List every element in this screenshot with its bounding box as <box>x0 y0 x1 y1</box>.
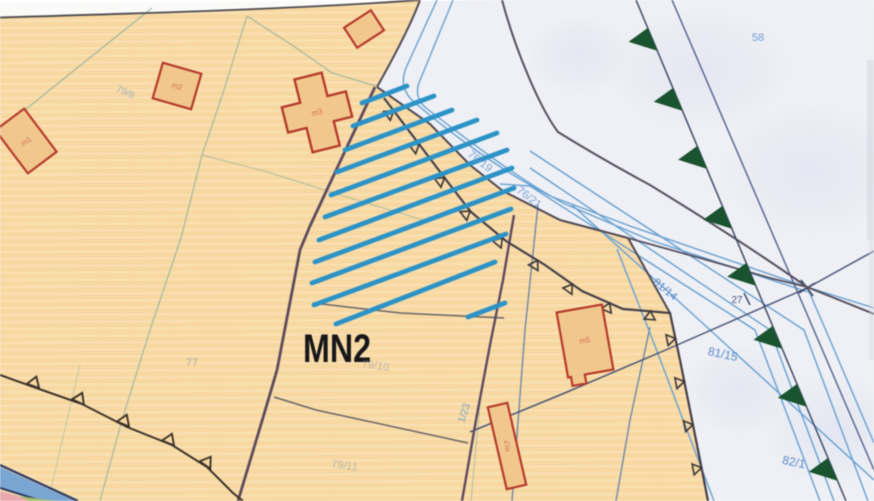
svg-text:58: 58 <box>752 32 764 44</box>
svg-text:77: 77 <box>186 357 198 369</box>
svg-text:m7: m7 <box>503 440 512 452</box>
svg-text:27: 27 <box>731 295 743 306</box>
